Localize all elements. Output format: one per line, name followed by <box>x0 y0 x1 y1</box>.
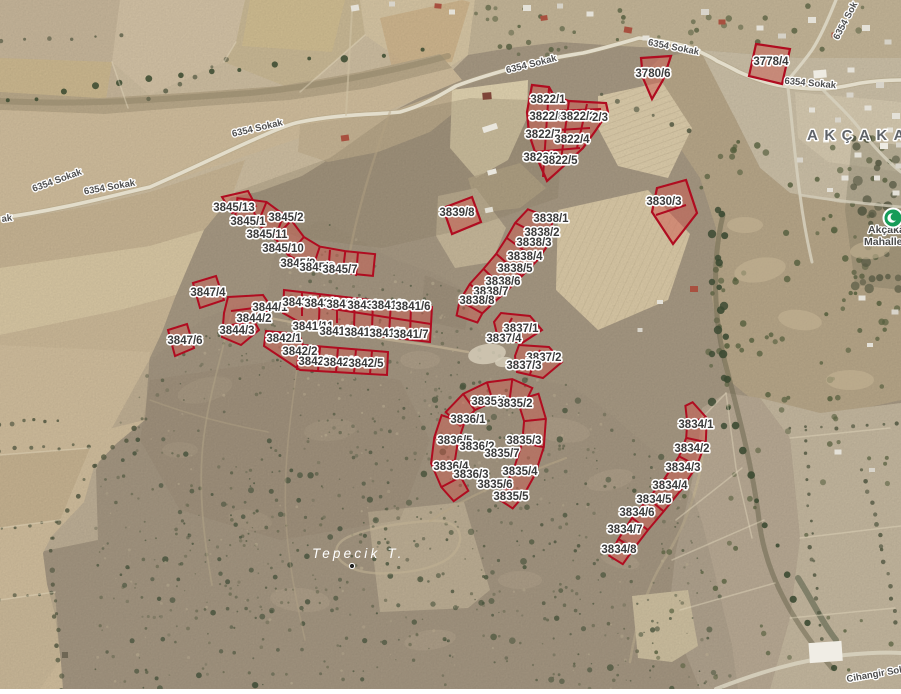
svg-text:3780/6: 3780/6 <box>635 68 670 80</box>
svg-text:3835/2: 3835/2 <box>497 398 532 410</box>
svg-text:3778/4: 3778/4 <box>753 56 789 68</box>
svg-text:3838/4: 3838/4 <box>507 251 543 263</box>
svg-text:3838/8: 3838/8 <box>459 295 495 307</box>
svg-text:3841/6: 3841/6 <box>395 301 430 313</box>
svg-text:3844/2: 3844/2 <box>236 313 271 325</box>
svg-text:3834/2: 3834/2 <box>674 443 709 455</box>
svg-text:Tepecik T.: Tepecik T. <box>312 546 405 561</box>
svg-text:3835/3: 3835/3 <box>506 435 541 447</box>
svg-text:3835/7: 3835/7 <box>484 448 519 460</box>
svg-text:3822/5: 3822/5 <box>542 155 578 167</box>
svg-text:3830/3: 3830/3 <box>646 196 681 208</box>
svg-text:3841/7: 3841/7 <box>393 329 428 341</box>
svg-text:3845/2: 3845/2 <box>268 212 303 224</box>
svg-text:3838/1: 3838/1 <box>533 213 569 225</box>
svg-text:3845/7: 3845/7 <box>322 264 357 276</box>
svg-text:3842/1: 3842/1 <box>266 333 302 345</box>
svg-text:3834/7: 3834/7 <box>607 524 642 536</box>
svg-text:Mahalle: Mahalle <box>864 236 901 248</box>
svg-text:3844/3: 3844/3 <box>219 325 254 337</box>
svg-text:3835/4: 3835/4 <box>502 466 538 478</box>
svg-text:3835/5: 3835/5 <box>493 491 529 503</box>
svg-text:3834/4: 3834/4 <box>652 480 688 492</box>
svg-text:3834/8: 3834/8 <box>601 544 637 556</box>
svg-text:3834/1: 3834/1 <box>678 419 714 431</box>
svg-text:3834/5: 3834/5 <box>636 494 672 506</box>
svg-text:3847/6: 3847/6 <box>167 335 202 347</box>
svg-text:3845/1: 3845/1 <box>230 216 266 228</box>
svg-text:3839/8: 3839/8 <box>439 207 475 219</box>
svg-text:3837/3: 3837/3 <box>506 360 541 372</box>
svg-text:3845/10: 3845/10 <box>262 243 304 255</box>
svg-text:3847/4: 3847/4 <box>190 287 226 299</box>
svg-text:3845/11: 3845/11 <box>247 229 289 241</box>
svg-text:2/3: 2/3 <box>592 112 608 124</box>
svg-text:3836/1: 3836/1 <box>450 414 486 426</box>
svg-text:3842/5: 3842/5 <box>348 358 384 370</box>
svg-text:3835/6: 3835/6 <box>477 479 512 491</box>
svg-text:3822/4: 3822/4 <box>554 134 590 146</box>
svg-text:3837/4: 3837/4 <box>486 333 522 345</box>
svg-text:3822/2: 3822/2 <box>560 111 595 123</box>
svg-text:3834/3: 3834/3 <box>665 462 700 474</box>
svg-text:3838/3: 3838/3 <box>516 237 551 249</box>
svg-text:3845/13: 3845/13 <box>213 202 255 214</box>
svg-text:3838/5: 3838/5 <box>497 263 533 275</box>
svg-text:3834/6: 3834/6 <box>619 507 654 519</box>
svg-text:3822/1: 3822/1 <box>530 94 566 106</box>
svg-text:AKÇAKA: AKÇAKA <box>807 127 901 144</box>
